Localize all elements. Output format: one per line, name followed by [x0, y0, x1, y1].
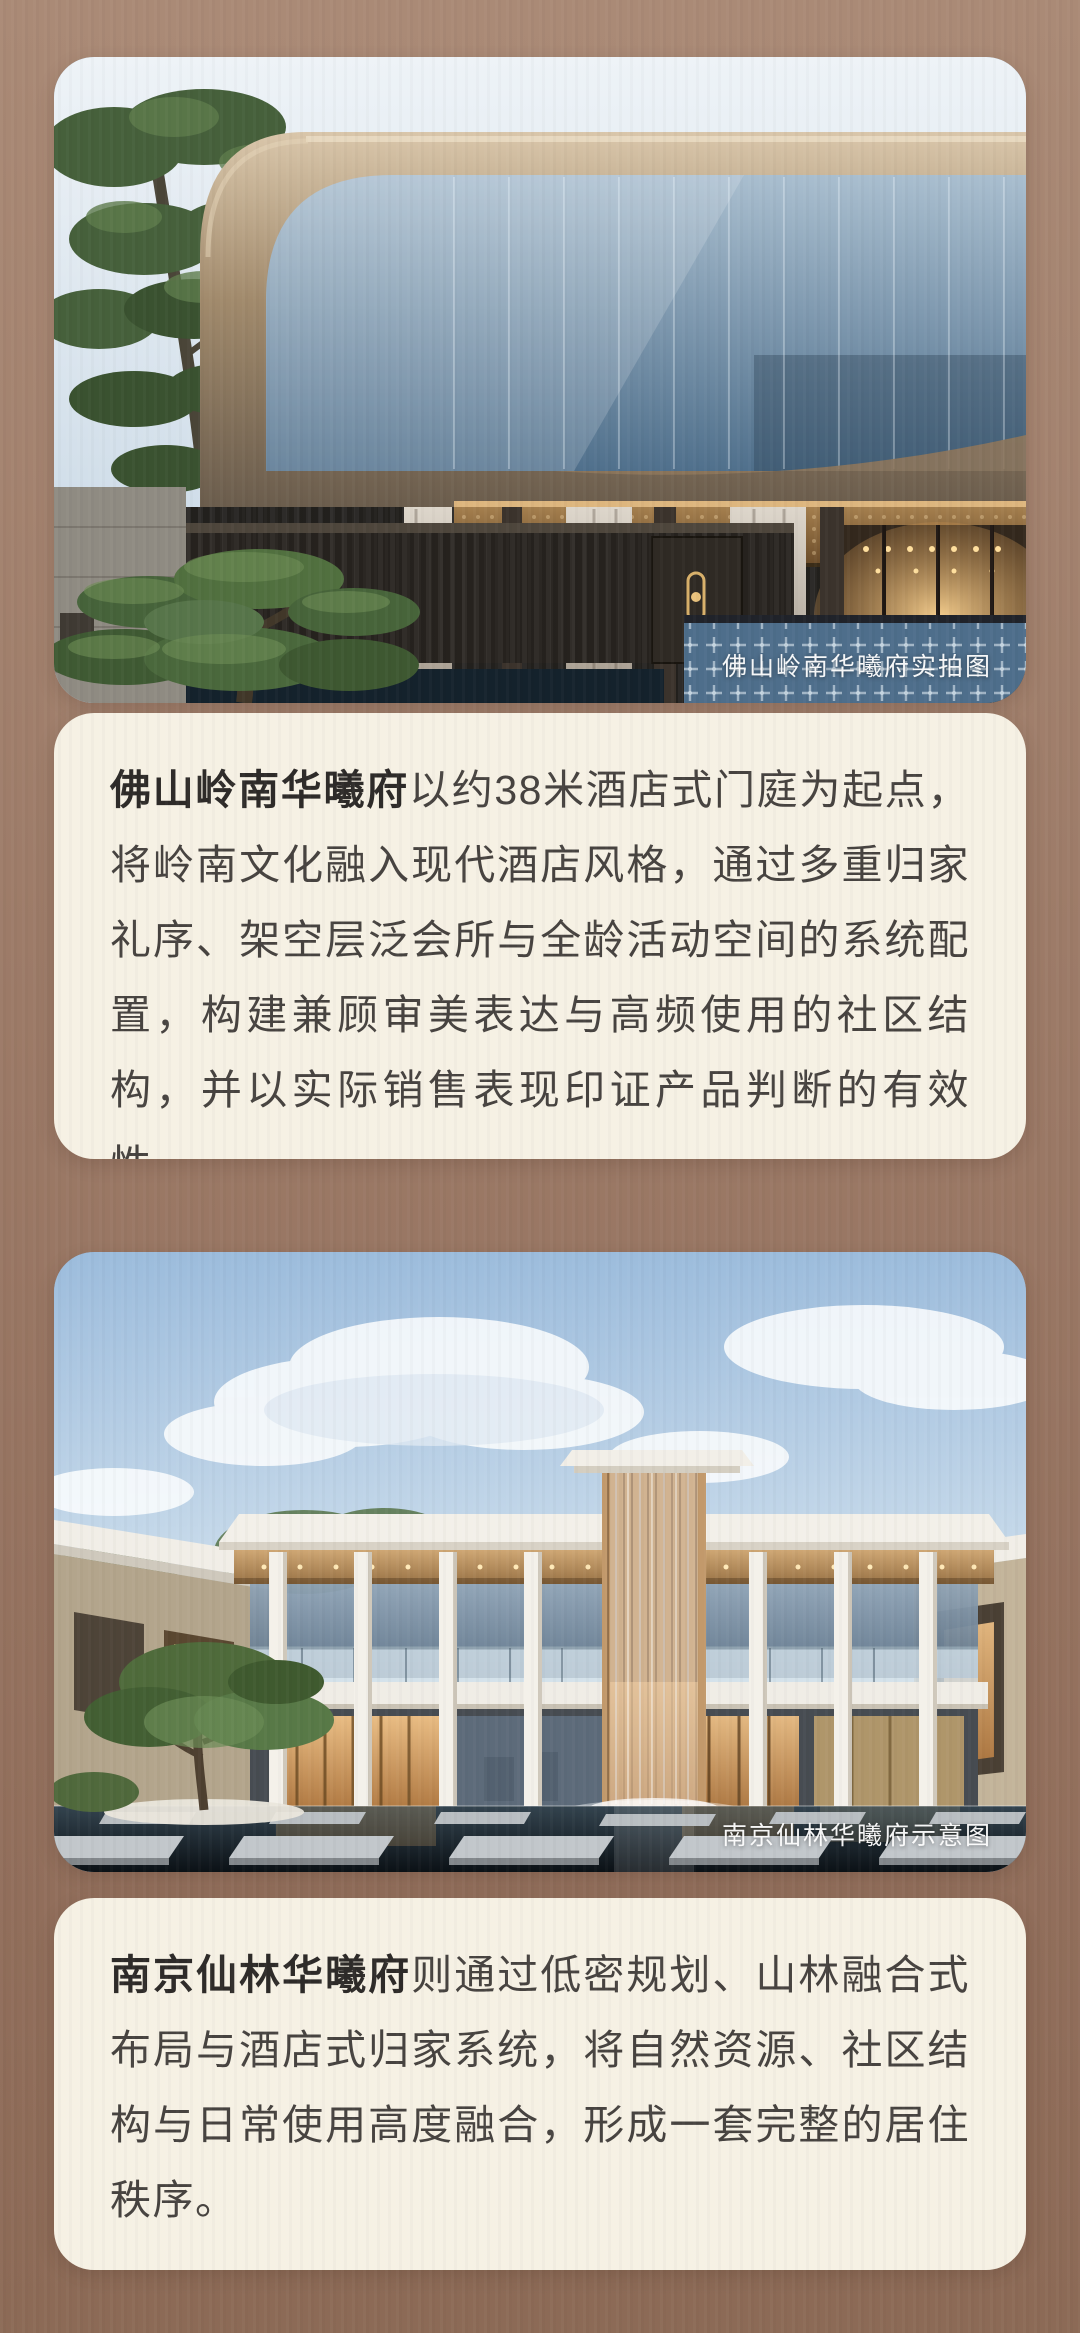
photo-caption-nanjing: 南京仙林华曦府示意图: [722, 1816, 992, 1852]
paragraph-body-foshan: 以约38米酒店式门庭为起点，将岭南文化融入现代酒店风格，通过多重归家礼序、架空层…: [110, 767, 970, 1159]
paragraph-lead-foshan: 佛山岭南华曦府: [110, 767, 409, 813]
paragraph-lead-nanjing: 南京仙林华曦府: [110, 1952, 411, 1998]
foshan-exterior-illustration: [54, 57, 1026, 703]
waterfall: [610, 1473, 698, 1807]
article-page: { "page": { "background_top": "#aa8a76",…: [0, 0, 1080, 2333]
photo-caption-foshan: 佛山岭南华曦府实拍图: [722, 647, 992, 683]
nanjing-rendering-illustration: [54, 1252, 1026, 1872]
paragraph-nanjing: 南京仙林华曦府则通过低密规划、山林融合式布局与酒店式归家系统，将自然资源、社区结…: [54, 1898, 1026, 2238]
photo-card-nanjing: 南京仙林华曦府示意图: [54, 1252, 1026, 1872]
text-card-foshan: 佛山岭南华曦府以约38米酒店式门庭为起点，将岭南文化融入现代酒店风格，通过多重归…: [54, 713, 1026, 1159]
building-upper-volume: [200, 132, 1026, 507]
paragraph-foshan: 佛山岭南华曦府以约38米酒店式门庭为起点，将岭南文化融入现代酒店风格，通过多重归…: [54, 713, 1026, 1159]
text-card-nanjing: 南京仙林华曦府则通过低密规划、山林融合式布局与酒店式归家系统，将自然资源、社区结…: [54, 1898, 1026, 2270]
photo-card-foshan: 佛山岭南华曦府实拍图: [54, 57, 1026, 703]
tower-cap: [560, 1450, 754, 1466]
